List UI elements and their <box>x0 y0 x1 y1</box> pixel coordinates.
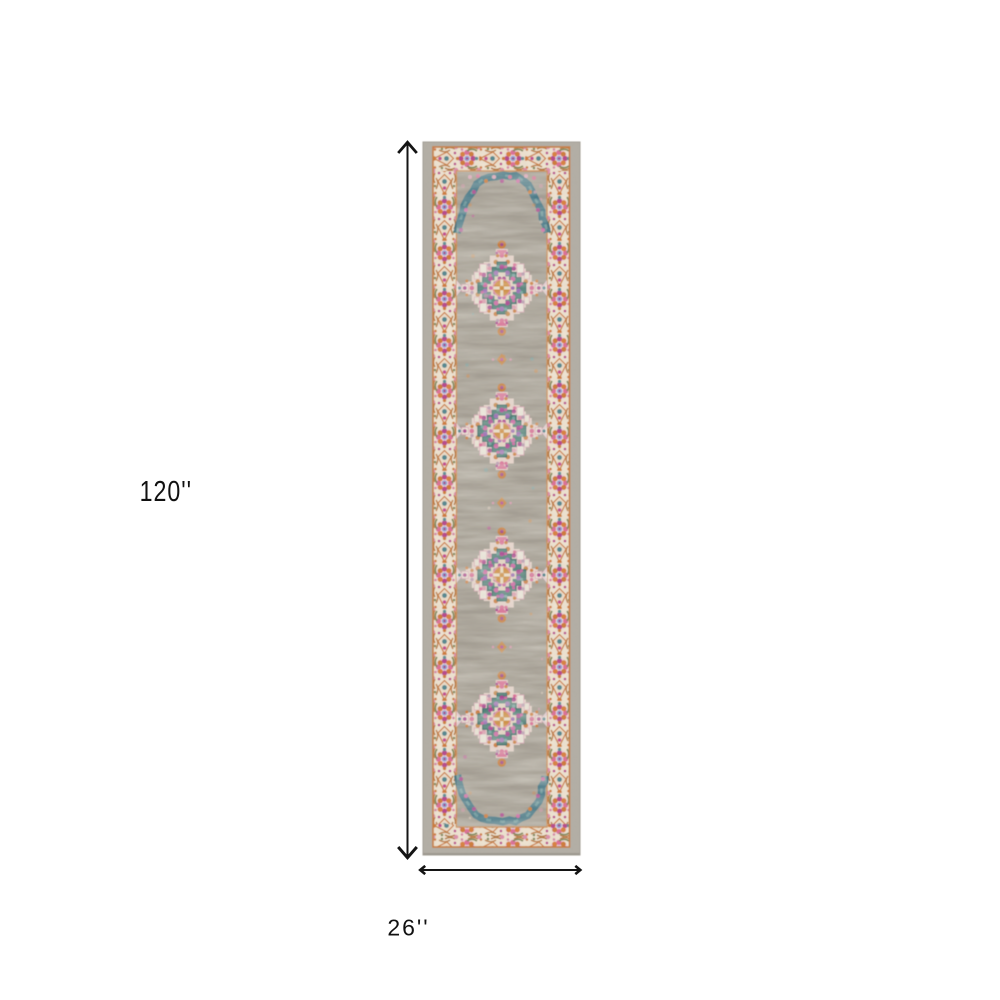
svg-text:26'': 26'' <box>387 915 429 941</box>
svg-text:120'': 120'' <box>140 474 192 507</box>
